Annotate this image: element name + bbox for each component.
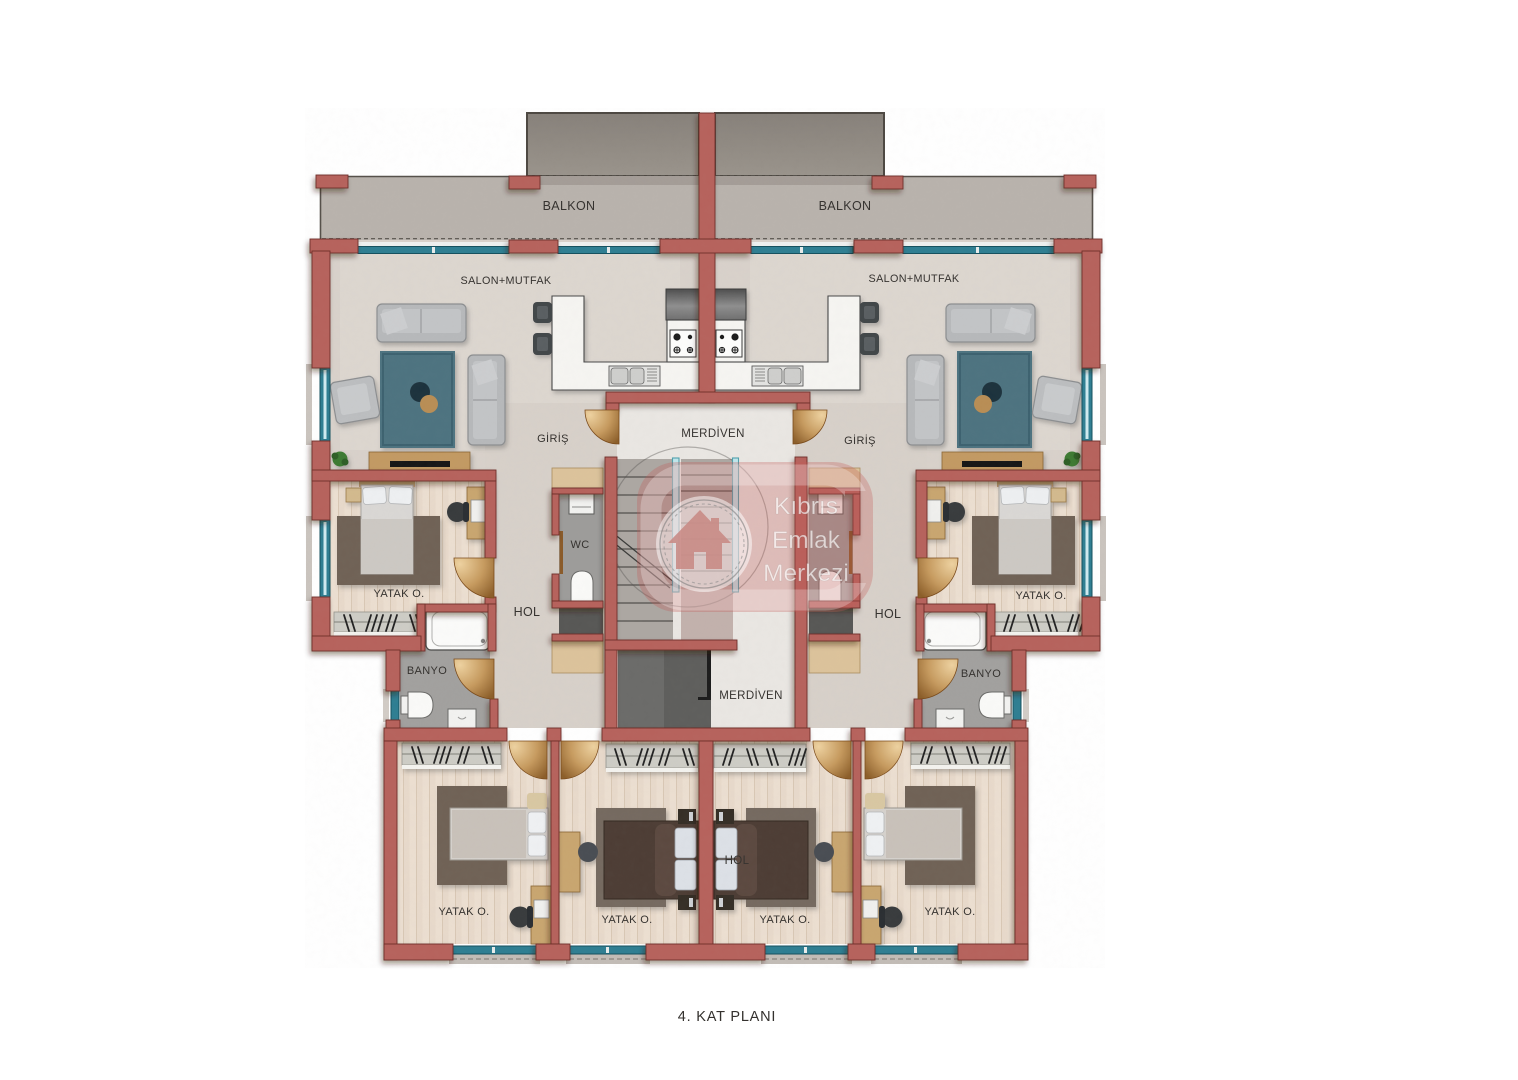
svg-text:4. KAT PLANI: 4. KAT PLANI (678, 1009, 777, 1025)
